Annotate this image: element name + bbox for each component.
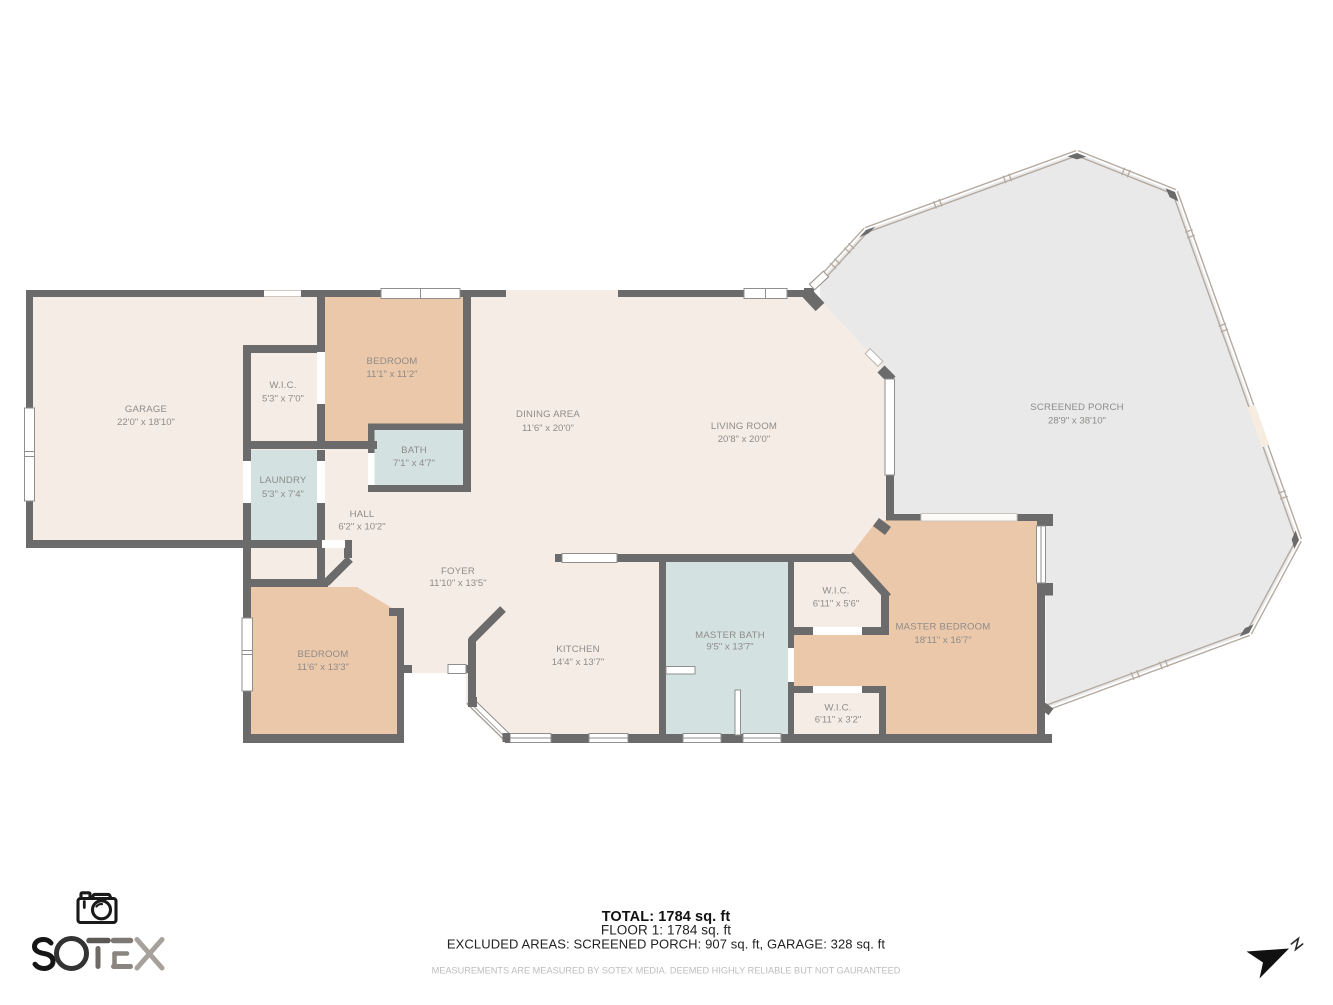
svg-text:FLOOR 1: 1784 sq. ft: FLOOR 1: 1784 sq. ft xyxy=(601,923,731,938)
svg-text:BATH: BATH xyxy=(401,445,427,456)
svg-text:MASTER BEDROOM: MASTER BEDROOM xyxy=(895,622,990,633)
svg-text:W.I.C.: W.I.C. xyxy=(269,380,296,391)
svg-text:GARAGE: GARAGE xyxy=(125,404,167,415)
svg-text:5'3" x 7'0": 5'3" x 7'0" xyxy=(262,394,304,405)
svg-text:11'1" x 11'2": 11'1" x 11'2" xyxy=(366,369,417,380)
svg-text:MEASUREMENTS ARE MEASURED BY S: MEASUREMENTS ARE MEASURED BY SOTEX MEDIA… xyxy=(432,966,901,976)
svg-text:6'2" x 10'2": 6'2" x 10'2" xyxy=(338,522,385,533)
svg-text:5'3" x 7'4": 5'3" x 7'4" xyxy=(262,489,304,500)
svg-text:18'11" x 16'7": 18'11" x 16'7" xyxy=(914,635,971,646)
svg-text:28'9" x 38'10": 28'9" x 38'10" xyxy=(1048,416,1106,427)
svg-text:KITCHEN: KITCHEN xyxy=(556,644,600,655)
svg-text:6'11" x 5'6": 6'11" x 5'6" xyxy=(813,599,860,610)
svg-text:9'5" x 13'7": 9'5" x 13'7" xyxy=(706,642,753,653)
svg-text:14'4" x 13'7": 14'4" x 13'7" xyxy=(552,657,605,668)
svg-text:11'6" x 13'3": 11'6" x 13'3" xyxy=(297,662,349,673)
svg-text:W.I.C.: W.I.C. xyxy=(824,703,851,714)
svg-text:BEDROOM: BEDROOM xyxy=(367,356,418,367)
svg-text:LIVING ROOM: LIVING ROOM xyxy=(711,421,777,432)
svg-text:11'10" x 13'5": 11'10" x 13'5" xyxy=(429,578,486,589)
svg-text:EXCLUDED AREAS: SCREENED PORCH: EXCLUDED AREAS: SCREENED PORCH: 907 sq. … xyxy=(447,937,886,952)
svg-text:DINING AREA: DINING AREA xyxy=(516,409,580,420)
svg-text:11'6" x 20'0": 11'6" x 20'0" xyxy=(522,423,574,434)
svg-text:MASTER BATH: MASTER BATH xyxy=(695,630,765,641)
svg-text:22'0" x 18'10": 22'0" x 18'10" xyxy=(117,417,175,428)
svg-text:HALL: HALL xyxy=(350,509,375,520)
svg-text:FOYER: FOYER xyxy=(441,566,475,577)
svg-text:6'11" x 3'2": 6'11" x 3'2" xyxy=(815,715,862,726)
svg-text:BEDROOM: BEDROOM xyxy=(298,649,349,660)
svg-text:SCREENED PORCH: SCREENED PORCH xyxy=(1030,402,1123,413)
svg-text:LAUNDRY: LAUNDRY xyxy=(259,475,306,486)
svg-text:W.I.C.: W.I.C. xyxy=(822,586,849,597)
svg-text:20'8" x 20'0": 20'8" x 20'0" xyxy=(718,434,771,445)
svg-text:7'1" x 4'7": 7'1" x 4'7" xyxy=(393,458,435,469)
